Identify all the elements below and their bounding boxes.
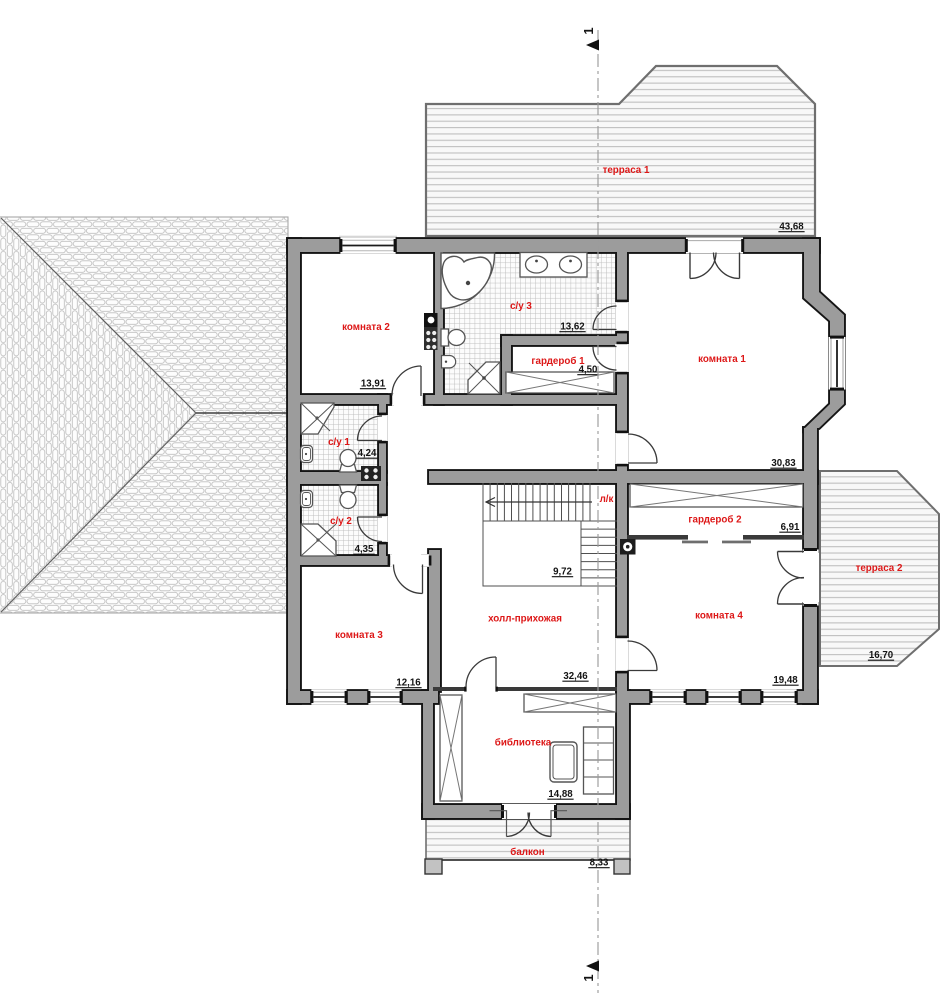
- svg-text:8,33: 8,33: [590, 858, 609, 869]
- svg-text:л/к: л/к: [600, 494, 614, 505]
- svg-text:9,72: 9,72: [553, 567, 572, 578]
- svg-text:13,91: 13,91: [361, 379, 386, 390]
- svg-text:19,48: 19,48: [773, 675, 798, 686]
- svg-text:гардероб 1: гардероб 1: [531, 356, 585, 367]
- svg-text:30,83: 30,83: [771, 458, 796, 469]
- svg-text:13,62: 13,62: [560, 322, 584, 333]
- svg-text:43,68: 43,68: [779, 222, 804, 233]
- svg-text:комната 1: комната 1: [698, 354, 746, 365]
- svg-text:1: 1: [581, 974, 596, 981]
- svg-text:терраса 2: терраса 2: [856, 563, 903, 574]
- svg-text:4,24: 4,24: [358, 448, 377, 459]
- svg-text:с/у 2: с/у 2: [330, 516, 352, 527]
- svg-text:6,91: 6,91: [781, 522, 800, 533]
- svg-text:комната 3: комната 3: [335, 630, 383, 641]
- svg-text:16,70: 16,70: [869, 650, 893, 661]
- svg-text:4,35: 4,35: [355, 544, 374, 555]
- svg-text:комната 2: комната 2: [342, 322, 390, 333]
- svg-text:холл-прихожая: холл-прихожая: [488, 614, 562, 625]
- svg-text:библиотека: библиотека: [495, 738, 552, 749]
- svg-text:комната 4: комната 4: [695, 611, 743, 622]
- svg-text:балкон: балкон: [510, 847, 544, 858]
- svg-text:12,16: 12,16: [396, 678, 421, 689]
- svg-text:1: 1: [581, 27, 596, 34]
- svg-text:4,50: 4,50: [579, 365, 598, 376]
- svg-text:с/у 3: с/у 3: [510, 301, 532, 312]
- svg-text:32,46: 32,46: [563, 671, 588, 682]
- svg-text:14,88: 14,88: [548, 789, 573, 800]
- svg-text:терраса 1: терраса 1: [603, 165, 650, 176]
- svg-text:гардероб 2: гардероб 2: [688, 515, 742, 526]
- svg-text:с/у 1: с/у 1: [328, 437, 350, 448]
